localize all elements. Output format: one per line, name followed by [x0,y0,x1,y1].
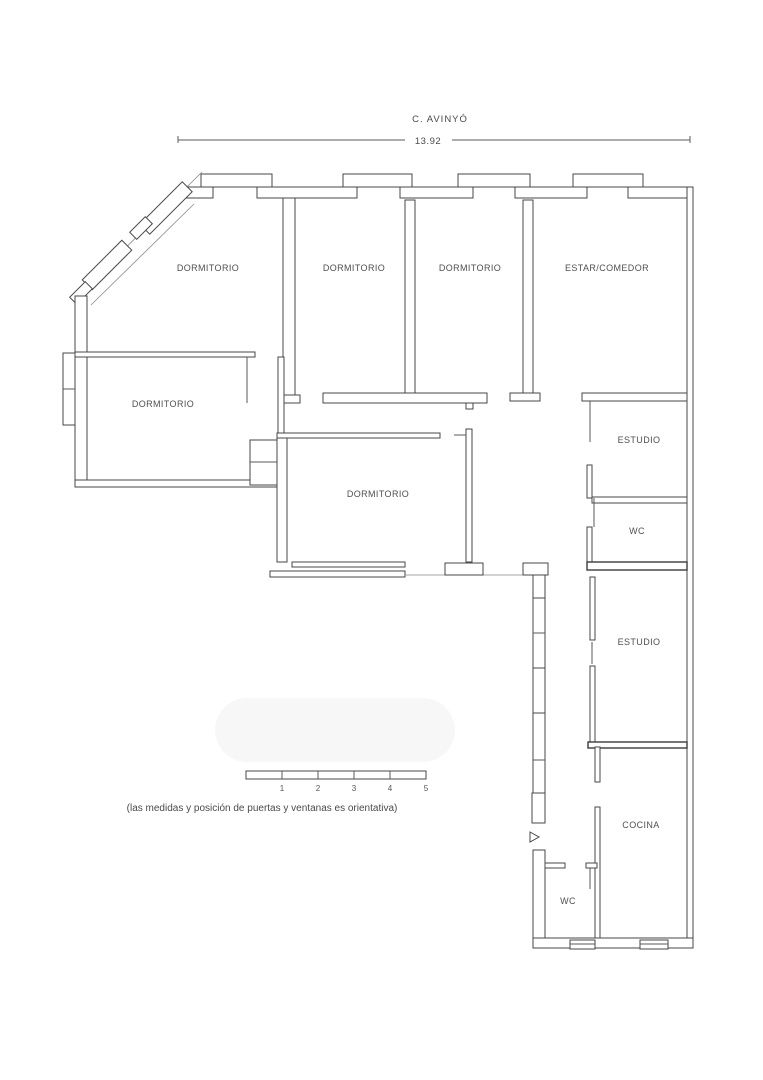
floorplan-page: C. AVINYÓ 13.92 [0,0,763,1080]
room-label-wc-2: WC [560,896,576,906]
floorplan-drawing: C. AVINYÓ 13.92 [0,0,763,1080]
room-label-dormitorio-center: DORMITORIO [347,489,409,499]
window-icon [343,174,412,187]
scale-tick-4: 4 [388,784,393,793]
room-label-dormitorio-left: DORMITORIO [132,399,194,409]
room-label-dormitorio-1: DORMITORIO [177,263,239,273]
room-label-estudio-2: ESTUDIO [618,637,661,647]
room-label-estudio-1: ESTUDIO [618,435,661,445]
room-label-wc-1: WC [629,526,645,536]
watermark [215,698,455,762]
scale-tick-3: 3 [352,784,357,793]
room-label-estar-comedor: ESTAR/COMEDOR [565,263,649,273]
disclaimer-note: (las medidas y posición de puertas y ven… [127,803,398,814]
window-icon [201,174,272,187]
window-icon [458,174,530,187]
entrance-arrow-icon [530,832,539,842]
dimension-value: 13.92 [415,136,441,147]
right-wing-walls [540,401,687,938]
scale-tick-1: 1 [280,784,285,793]
dimension-header: C. AVINYÓ 13.92 [178,114,690,147]
window-icon [533,713,545,793]
scale-tick-5: 5 [424,784,429,793]
top-facade-walls [183,174,690,198]
center-bedroom-walls [270,429,523,577]
chamfer-corner-walls [70,172,202,305]
street-label: C. AVINYÓ [412,114,468,125]
scale-tick-2: 2 [316,784,321,793]
window-icon [82,240,131,289]
top-row-partitions [75,198,687,409]
window-icon [573,174,643,187]
scale-bar: 1 2 3 4 5 [246,771,429,793]
room-label-cocina: COCINA [622,820,659,830]
corridor-walls [523,563,548,938]
room-label-dormitorio-3: DORMITORIO [439,263,501,273]
room-label-dormitorio-2: DORMITORIO [323,263,385,273]
